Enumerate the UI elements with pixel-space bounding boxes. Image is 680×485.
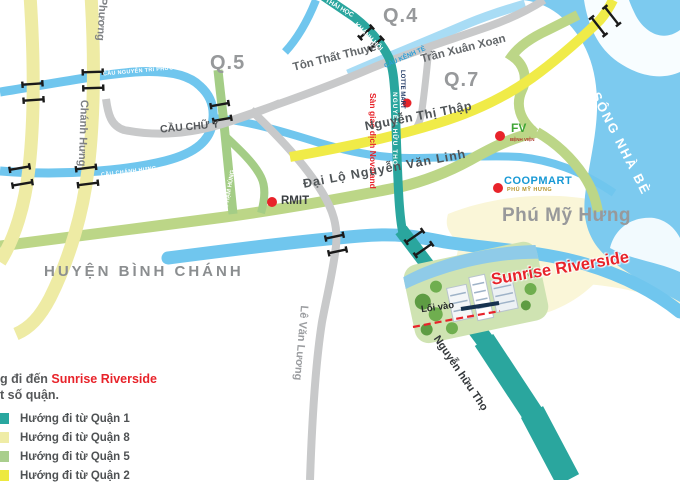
legend-title-line2: t số quận. (0, 388, 157, 402)
legend-item: Hướng đi từ Quận 2 (0, 466, 157, 485)
poi-label-coopmart-sub: PHÚ MỸ HƯNG (507, 188, 552, 194)
district-q4: Q.4 (383, 6, 418, 26)
legend-color-chip (0, 451, 9, 462)
poi-label-coopmart: COOPMART (504, 176, 572, 187)
legend-item: Hướng đi từ Quận 8 (0, 428, 157, 447)
area-label-huyen-binh-chanh: HUYỆN BÌNH CHÁNH (44, 264, 244, 279)
road-label-nguyen-huu-tho: NGUYỄN HỮU THỌ (391, 92, 398, 166)
legend-title-highlight: Sunrise Riverside (51, 372, 157, 386)
area-label-phu-my-hung: Phú Mỹ Hưng (502, 206, 631, 225)
rmit-dot (267, 197, 277, 207)
legend-items: Hướng đi từ Quận 1Hướng đi từ Quận 8Hướn… (0, 409, 157, 485)
coopmart-dot (493, 183, 503, 193)
legend: g đi đến Sunrise Riverside t số quận. Hư… (0, 372, 157, 485)
legend-item-label: Hướng đi từ Quận 5 (20, 451, 130, 463)
map-page: { "map": { "districts": { "q4": "Q.4", "… (0, 0, 680, 480)
legend-title: g đi đến Sunrise Riverside (0, 372, 157, 386)
poi-label-fv: FV (511, 122, 526, 134)
legend-item: Hướng đi từ Quận 1 (0, 409, 157, 428)
fv-dot (495, 131, 505, 141)
legend-item-label: Hướng đi từ Quận 1 (20, 413, 130, 425)
road-label-phuong: Phương (94, 0, 108, 41)
legend-title-prefix: g đi đến (0, 372, 51, 386)
legend-item-label: Hướng đi từ Quận 8 (20, 432, 130, 444)
district-q5: Q.5 (210, 53, 245, 73)
legend-color-chip (0, 432, 9, 443)
district-q7: Q.7 (444, 70, 479, 90)
poi-label-rmit: RMIT (281, 196, 309, 208)
poi-label-lotte-mart: LOTTE MART (399, 70, 405, 109)
poi-label-fv-sub: BỆNH VIỆN (510, 138, 535, 143)
pham-hung-road (218, 70, 264, 214)
legend-color-chip (0, 470, 9, 481)
legend-item: Hướng đi từ Quận 5 (0, 447, 157, 466)
q8-roads (0, 0, 93, 334)
road-label-chanh-hung: Chánh Hưng (76, 100, 89, 167)
legend-color-chip (0, 413, 9, 424)
